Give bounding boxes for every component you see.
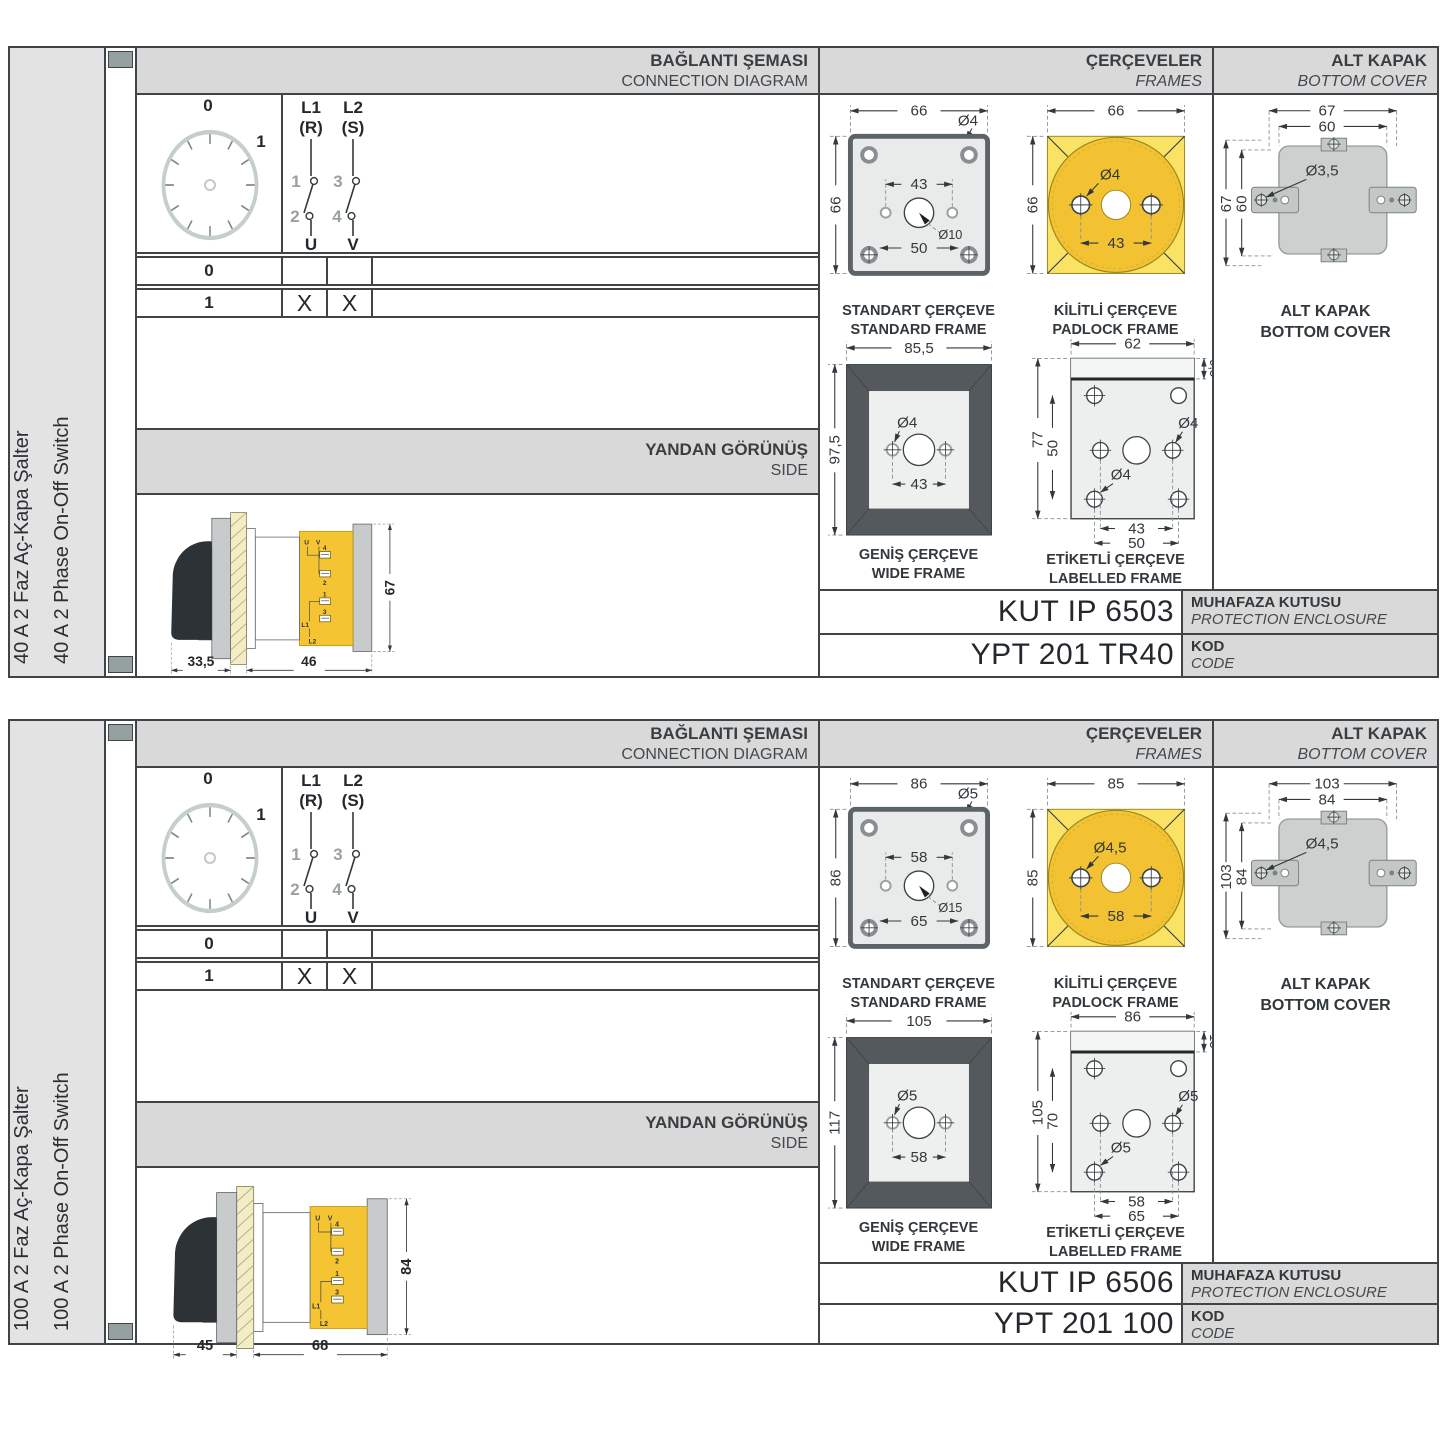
dim-width: 67 — [1319, 103, 1336, 120]
state-mark-v: X — [328, 290, 373, 316]
pole1-label: L1 — [301, 98, 321, 117]
enclosure-code: KUT IP 6506 — [820, 1264, 1181, 1303]
product-code: YPT 201 100 — [820, 1305, 1181, 1344]
contact-1: 1 — [291, 172, 300, 191]
dim-depth-body: 68 — [312, 1338, 328, 1354]
svg-text:4: 4 — [332, 880, 342, 899]
padlock-frame-drawing: 85 85 Ø4,5 58 — [1020, 770, 1212, 974]
state-row-0: 0 — [137, 929, 818, 959]
svg-text:117: 117 — [826, 1111, 843, 1135]
dim-inner-height: 50 — [1044, 440, 1061, 457]
labelled-frame-cell: 86 13 105 70 — [1017, 1008, 1214, 1262]
labelled-frame-caption: ETİKETLİ ÇERÇEVELABELLED FRAME — [1046, 551, 1185, 589]
side-view-drawing-area: U V 4 2 1 3 L1 L2 — [145, 1171, 455, 1364]
dim-depth-handle: 33,5 — [188, 654, 215, 669]
spine-mark-bottom — [108, 1323, 133, 1340]
dim-hole: Ø4 — [897, 414, 917, 431]
svg-text:3: 3 — [323, 609, 327, 616]
dim-label-height: 9,5 — [1206, 359, 1211, 377]
svg-text:L1: L1 — [301, 622, 309, 629]
panel-hatch — [231, 512, 247, 664]
dim-hole-spacing: 43 — [910, 476, 927, 493]
dim-hole-spacing: 43 — [1107, 235, 1124, 252]
contacts-cell: L1 (R) L2 (S) 1 2 3 4 U V — [283, 768, 818, 925]
standard-frame-drawing: 86 Ø5 86 58 Ø15 — [823, 770, 1015, 974]
connection-panel: BAĞLANTI ŞEMASI CONNECTION DIAGRAM — [137, 721, 818, 1343]
side-header-tr: YANDAN GÖRÜNÜŞ — [137, 440, 808, 461]
padlock-frame-drawing: 66 66 Ø4 43 — [1020, 97, 1212, 301]
state-row-1: 1 X X — [137, 961, 818, 991]
code-row: YPT 201 TR40 KOD CODE — [820, 633, 1437, 677]
state-row-1: 1 X X — [137, 288, 818, 318]
product-label-block: 100 A 2 Faz Aç-Kapa Şalter 100 A 2 Phase… — [10, 721, 106, 1343]
svg-text:L1: L1 — [301, 771, 321, 790]
pole2-label: L2 — [343, 98, 363, 117]
frames-header: ÇERÇEVELER FRAMES — [820, 48, 1212, 95]
wide-frame-cell: 85,5 97,5 Ø4 43 GENİŞ ÇERÇEVEWIDE FRA — [820, 335, 1017, 584]
dim-hole-spacing: 43 — [910, 176, 927, 193]
panel-hatch — [237, 1186, 254, 1348]
svg-text:Ø15: Ø15 — [938, 900, 962, 915]
product-code: YPT 201 TR40 — [820, 635, 1181, 677]
product-name-tr: 40 A 2 Faz Aç-Kapa Şalter — [11, 431, 34, 664]
state-row-0: 0 — [137, 256, 818, 286]
enclosure-code: KUT IP 6503 — [820, 591, 1181, 633]
connection-header: BAĞLANTI ŞEMASI CONNECTION DIAGRAM — [137, 721, 818, 768]
svg-text:85: 85 — [1107, 776, 1124, 793]
cover-caption: ALT KAPAKBOTTOM COVER — [1214, 302, 1437, 344]
connection-diagram: 0 1 L1 (R) L2 (S) 1 2 — [137, 95, 818, 254]
binding-spine — [106, 48, 137, 676]
product-label-block: 40 A 2 Faz Aç-Kapa Şalter 40 A 2 Phase O… — [10, 48, 106, 676]
pole2-phase: (S) — [342, 118, 365, 137]
cover-header-tr: ALT KAPAK — [1214, 51, 1427, 72]
dim-height: 66 — [827, 196, 844, 213]
wide-frame-caption: GENİŞ ÇERÇEVEWIDE FRAME — [859, 546, 978, 584]
bottom-cover-panel: ALT KAPAK BOTTOM COVER 67 60 67 60 — [1212, 48, 1437, 589]
wide-frame-cell: 105 117 Ø5 58 GENİŞ ÇERÇEVEWIDE FRAME — [820, 1008, 1017, 1257]
svg-text:L2: L2 — [309, 639, 317, 646]
frames-header: ÇERÇEVELER FRAMES — [820, 721, 1212, 768]
bottom-cover-panel: ALT KAPAK BOTTOM COVER 103 84 103 84 — [1212, 721, 1437, 1262]
code-label: KOD CODE — [1181, 1305, 1437, 1344]
frames-panel: ÇERÇEVELER FRAMES 66 Ø4 66 — [818, 48, 1212, 676]
connection-header-en: CONNECTION DIAGRAM — [137, 72, 808, 91]
connection-header-tr: BAĞLANTI ŞEMASI — [137, 51, 808, 72]
dim-height: 97,5 — [826, 435, 843, 465]
labelled-frame-cell: 62 9,5 77 50 — [1017, 335, 1214, 589]
svg-text:4: 4 — [335, 1222, 339, 1229]
side-view-header: YANDAN GÖRÜNÜŞ SIDE — [137, 428, 818, 495]
product-name-tr: 100 A 2 Faz Aç-Kapa Şalter — [11, 1086, 34, 1331]
standard-frame-cell: 66 Ø4 66 43 Ø10 — [820, 97, 1017, 340]
frames-header-en: FRAMES — [820, 72, 1202, 91]
svg-text:0: 0 — [203, 769, 212, 788]
svg-text:103: 103 — [1218, 864, 1235, 889]
state-mark-v — [328, 258, 373, 284]
dim-hole: Ø4 — [957, 113, 977, 130]
padlock-frame-cell: 66 66 Ø4 43 KİLİTLİ ÇERÇEVEP — [1017, 97, 1214, 340]
switch-dial-drawing: 0 1 — [137, 768, 283, 925]
svg-text:4: 4 — [323, 545, 327, 552]
connection-panel: BAĞLANTI ŞEMASI CONNECTION DIAGRAM — [137, 48, 818, 676]
svg-text:V: V — [328, 1215, 333, 1222]
cover-header-en: BOTTOM COVER — [1214, 72, 1427, 91]
output-v: V — [347, 235, 359, 252]
svg-text:1: 1 — [256, 805, 265, 824]
svg-text:(S): (S) — [342, 791, 365, 810]
contacts-drawing: L1 (R) L2 (S) 1 2 3 4 U V — [283, 768, 816, 925]
svg-text:L2: L2 — [343, 771, 363, 790]
dial-pos-1: 1 — [256, 132, 265, 151]
dim-hole: Ø3,5 — [1306, 162, 1339, 179]
code-row: YPT 201 100 KOD CODE — [820, 1303, 1437, 1344]
svg-text:Ø4,5: Ø4,5 — [1306, 835, 1339, 852]
svg-text:58: 58 — [1107, 908, 1124, 925]
cover-caption: ALT KAPAKBOTTOM COVER — [1214, 975, 1437, 1017]
switch-handle — [173, 1217, 216, 1322]
svg-text:Ø5: Ø5 — [1178, 1088, 1198, 1105]
dim-hole-right: Ø4 — [1178, 415, 1198, 432]
bottom-cover-drawing: 103 84 103 84 Ø4,5 — [1214, 772, 1439, 974]
dial-cell: 0 1 — [137, 768, 283, 925]
svg-text:1: 1 — [335, 1271, 339, 1278]
side-view-drawing: U V 4 2 1 3 L1 L2 — [145, 1171, 455, 1364]
dim-width: 62 — [1124, 336, 1141, 353]
pole1-phase: (R) — [299, 118, 323, 137]
svg-text:84: 84 — [1319, 791, 1336, 808]
cover-header: ALT KAPAK BOTTOM COVER — [1214, 48, 1437, 95]
labelled-frame-drawing: 86 13 105 70 — [1020, 1008, 1212, 1223]
dial-pos-0: 0 — [203, 96, 212, 115]
state-mark-u — [283, 258, 328, 284]
contacts-drawing: L1 (R) L2 (S) 1 2 3 4 U V — [283, 95, 816, 252]
section-100a: 100 A 2 Faz Aç-Kapa Şalter 100 A 2 Phase… — [8, 719, 1439, 1345]
bottom-cover-drawing: 67 60 67 60 Ø3,5 — [1214, 99, 1439, 301]
connection-diagram: 0 1 L1 (R) L2 (S) 1 2 — [137, 768, 818, 927]
labelled-frame-drawing: 62 9,5 77 50 — [1020, 335, 1212, 550]
svg-text:103: 103 — [1314, 776, 1339, 793]
dim-hole: Ø4 — [1099, 166, 1119, 183]
svg-text:Ø4,5: Ø4,5 — [1093, 839, 1126, 856]
svg-text:85: 85 — [1024, 869, 1041, 886]
dim-width: 66 — [1107, 103, 1124, 120]
svg-text:84: 84 — [1234, 868, 1251, 885]
svg-text:86: 86 — [827, 869, 844, 886]
svg-text:65: 65 — [910, 913, 927, 930]
cover-header: ALT KAPAK BOTTOM COVER — [1214, 721, 1437, 768]
enclosure-row: KUT IP 6506 MUHAFAZA KUTUSU PROTECTION E… — [820, 1264, 1437, 1303]
dim-inner-width: 60 — [1319, 118, 1336, 135]
contact-4: 4 — [332, 207, 342, 226]
dim-height: 67 — [1218, 195, 1235, 212]
enclosure-label: MUHAFAZA KUTUSU PROTECTION ENCLOSURE — [1181, 1264, 1437, 1303]
dim-width: 85,5 — [904, 340, 934, 357]
codes-footer: KUT IP 6506 MUHAFAZA KUTUSU PROTECTION E… — [818, 1262, 1437, 1343]
svg-text:Ø5: Ø5 — [957, 786, 977, 803]
svg-text:65: 65 — [1128, 1208, 1145, 1223]
dim-shaft: Ø10 — [938, 227, 962, 242]
svg-text:3: 3 — [335, 1290, 339, 1297]
dim-screw-spacing: 50 — [1128, 535, 1145, 550]
padlock-frame-cell: 85 85 Ø4,5 58 KİLİTLİ ÇERÇEV — [1017, 770, 1214, 1013]
svg-text:86: 86 — [910, 776, 927, 793]
svg-text:13: 13 — [1206, 1034, 1211, 1048]
dial-cell: 0 1 — [137, 95, 283, 252]
svg-text:V: V — [316, 539, 321, 546]
contact-3: 3 — [333, 172, 342, 191]
svg-text:86: 86 — [1124, 1009, 1141, 1026]
dim-width: 66 — [910, 103, 927, 120]
code-label: KOD CODE — [1181, 635, 1437, 677]
svg-text:70: 70 — [1044, 1113, 1061, 1130]
svg-text:V: V — [347, 908, 359, 925]
svg-text:(R): (R) — [299, 791, 323, 810]
product-name-en: 100 A 2 Phase On-Off Switch — [51, 1072, 74, 1331]
side-view-header: YANDAN GÖRÜNÜŞ SIDE — [137, 1101, 818, 1168]
enclosure-label: MUHAFAZA KUTUSU PROTECTION ENCLOSURE — [1181, 591, 1437, 633]
codes-footer: KUT IP 6503 MUHAFAZA KUTUSU PROTECTION E… — [818, 589, 1437, 676]
svg-text:2: 2 — [290, 880, 299, 899]
wide-frame-drawing: 85,5 97,5 Ø4 43 — [823, 335, 1015, 545]
svg-text:58: 58 — [910, 849, 927, 866]
svg-text:58: 58 — [910, 1149, 927, 1166]
svg-text:1: 1 — [291, 845, 300, 864]
switch-dial-drawing: 0 1 — [137, 95, 283, 252]
frames-panel: ÇERÇEVELER FRAMES 86 Ø5 86 — [818, 721, 1212, 1343]
svg-text:2: 2 — [335, 1259, 339, 1266]
state-position: 0 — [137, 258, 283, 284]
connection-header: BAĞLANTI ŞEMASI CONNECTION DIAGRAM — [137, 48, 818, 95]
svg-text:U: U — [305, 908, 317, 925]
product-name-en: 40 A 2 Phase On-Off Switch — [51, 416, 74, 664]
svg-text:U: U — [315, 1215, 320, 1222]
svg-text:L2: L2 — [320, 1321, 328, 1328]
dim-hole-left: Ø4 — [1110, 467, 1130, 484]
state-position: 1 — [137, 290, 283, 316]
state-row-filler — [373, 258, 818, 284]
svg-text:Ø5: Ø5 — [1110, 1140, 1130, 1157]
switch-handle — [171, 541, 212, 640]
side-header-en: SIDE — [137, 461, 808, 480]
spine-mark-top — [108, 51, 133, 68]
dim-inner-height: 60 — [1234, 195, 1251, 212]
spine-mark-top — [108, 724, 133, 741]
contacts-cell: L1 (R) L2 (S) 1 2 3 4 U V — [283, 95, 818, 252]
contact-2: 2 — [290, 207, 299, 226]
dim-depth-handle: 45 — [197, 1338, 213, 1354]
standard-frame-drawing: 66 Ø4 66 43 Ø10 — [823, 97, 1015, 301]
spine-mark-bottom — [108, 656, 133, 673]
dim-height: 84 — [399, 1258, 415, 1275]
page: { "labels": { "connection": {"tr": "BAĞL… — [0, 0, 1445, 1445]
wide-frame-drawing: 105 117 Ø5 58 — [823, 1008, 1015, 1218]
binding-spine — [106, 721, 137, 1343]
svg-text:U: U — [304, 539, 309, 546]
side-view-drawing-area: U V 4 2 1 3 L1 L2 — [145, 498, 435, 679]
enclosure-row: KUT IP 6503 MUHAFAZA KUTUSU PROTECTION E… — [820, 591, 1437, 633]
svg-text:105: 105 — [906, 1013, 931, 1030]
dim-height: 66 — [1024, 196, 1041, 213]
dim-screw-spacing: 50 — [910, 240, 927, 257]
side-view-drawing: U V 4 2 1 3 L1 L2 — [145, 498, 435, 679]
frames-header-tr: ÇERÇEVELER — [820, 51, 1202, 72]
svg-text:3: 3 — [333, 845, 342, 864]
section-40a: 40 A 2 Faz Aç-Kapa Şalter 40 A 2 Phase O… — [8, 46, 1439, 678]
svg-text:Ø5: Ø5 — [897, 1087, 917, 1104]
state-row-filler — [373, 290, 818, 316]
state-mark-u: X — [283, 290, 328, 316]
standard-frame-cell: 86 Ø5 86 58 Ø15 — [820, 770, 1017, 1013]
svg-text:2: 2 — [323, 580, 327, 587]
dim-height: 67 — [382, 580, 397, 596]
dim-depth-body: 46 — [301, 654, 317, 669]
svg-text:L1: L1 — [312, 1303, 320, 1310]
output-u: U — [305, 235, 317, 252]
svg-text:1: 1 — [323, 591, 327, 598]
